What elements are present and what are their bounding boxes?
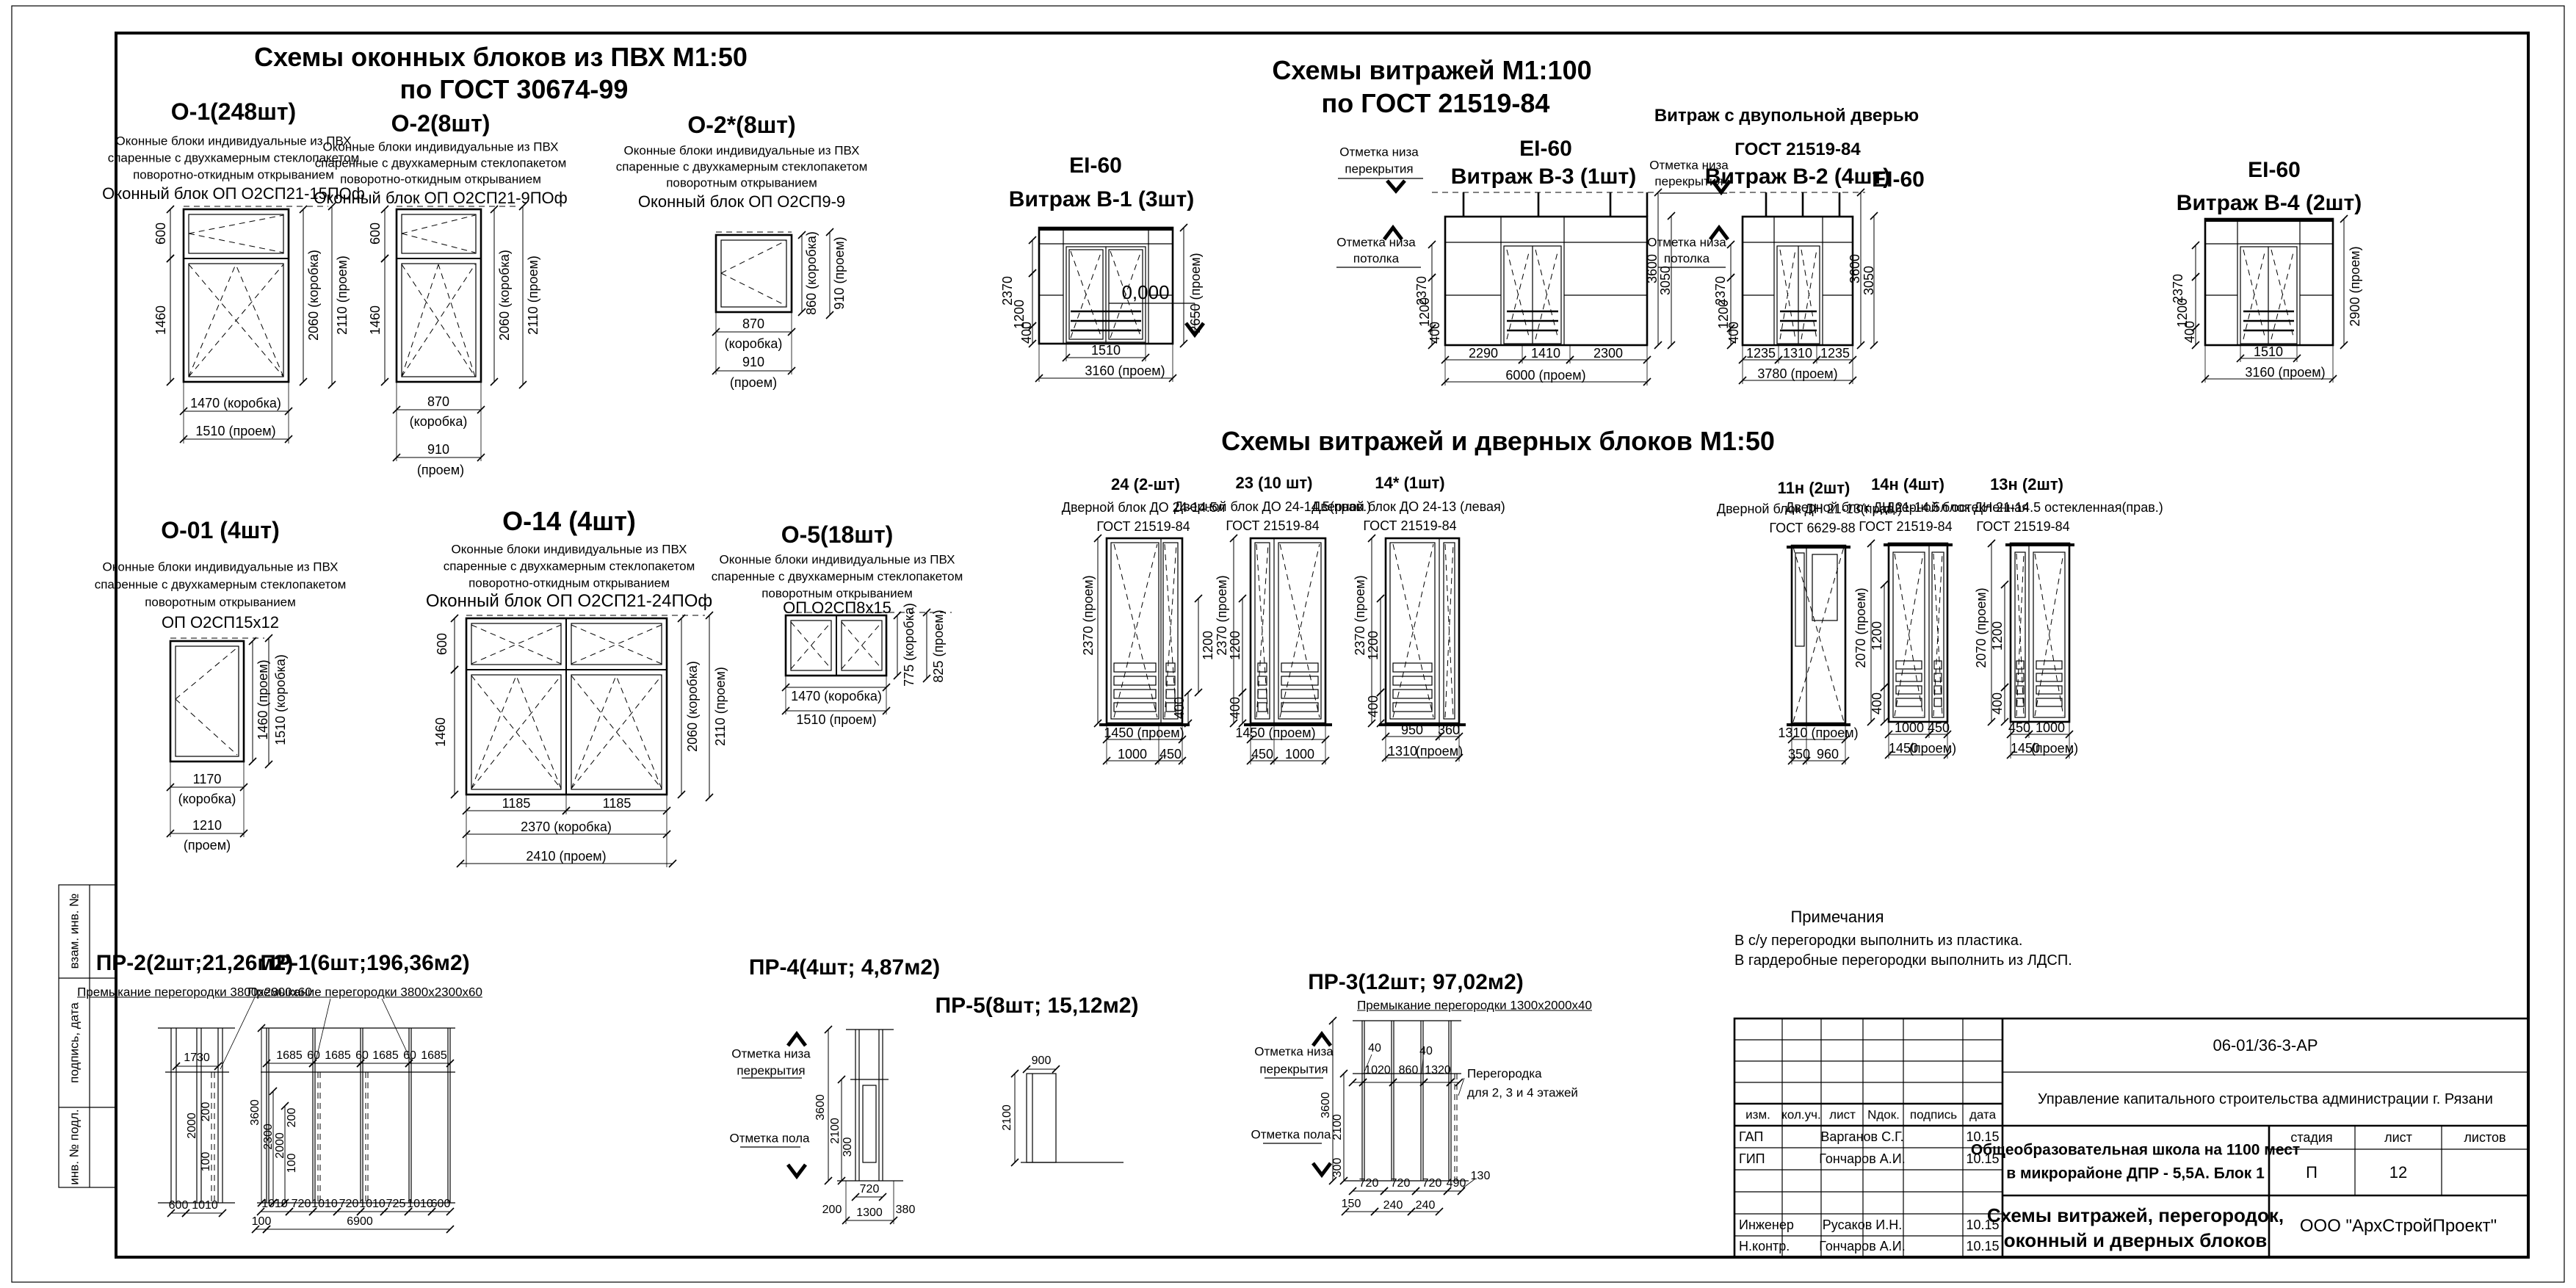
- dim-label: 2060 (коробка): [686, 661, 699, 752]
- dim-label: 1510 (проем): [796, 713, 876, 726]
- dim-label: 870: [742, 317, 764, 330]
- section-title-vitrage-2: по ГОСТ 21519-84: [1322, 90, 1550, 117]
- figure-title-pr5: ПР-5(8шт; 15,12м2): [936, 995, 1139, 1017]
- figure-desc: Дверной блок ДО 24-13 (левая): [1311, 500, 1505, 513]
- dim-label: 6000 (проем): [1505, 369, 1585, 382]
- dim-label: 950: [1401, 723, 1423, 737]
- dim-label: 860: [1399, 1065, 1419, 1077]
- dim-label: 1460: [154, 305, 167, 335]
- figure-subtitle: Витраж с двупольной дверью: [1654, 107, 1919, 125]
- figure-desc: поворотным открыванием: [666, 177, 817, 189]
- figure-desc: Оконные блоки индивидуальные из ПВХ: [720, 554, 955, 566]
- figure-desc: Дверной блок ДН 21-14.5 остекленная(прав…: [1886, 501, 2163, 514]
- mark-label: Отметка низа: [731, 1048, 811, 1060]
- section-title-vitrage-doors: Схемы витражей и дверных блоков М1:50: [1221, 428, 1775, 455]
- dim-label: 720: [339, 1198, 359, 1210]
- mark-label: Отметка низа: [1649, 159, 1729, 172]
- stamp-row-name: Гончаров А.И.: [1819, 1240, 1905, 1253]
- stamp-col-header: лист: [1829, 1109, 1856, 1121]
- figure-desc: спаренные с двухкамерным стеклопакетом: [95, 579, 347, 591]
- dim-label: 2370 (проем): [1082, 575, 1095, 655]
- dim-label: 400: [1727, 322, 1740, 344]
- mark-label: Отметка пола: [729, 1132, 809, 1145]
- dim-label: 490: [1447, 1178, 1466, 1190]
- figure-desc: поворотно-откидным открыванием: [468, 577, 670, 590]
- stamp-row-name: Русаков И.Н.: [1823, 1218, 1902, 1231]
- note-label: для 2, 3 и 4 этажей: [1467, 1087, 1578, 1099]
- mark-label: перекрытия: [1259, 1063, 1328, 1076]
- dim-label: 2060 (коробка): [498, 250, 511, 341]
- dim-label: 600: [169, 1200, 189, 1212]
- dim-label: 600: [435, 633, 449, 655]
- figure-title-d13n: 13н (2шт): [1990, 477, 2063, 493]
- dim-label: (коробка): [410, 415, 468, 428]
- dim-label: 3160 (проем): [2245, 366, 2325, 379]
- section-title-windows-1: Схемы оконных блоков из ПВХ М1:50: [254, 44, 748, 70]
- dim-label: 1460: [369, 305, 382, 335]
- dim-label: 6900: [347, 1216, 373, 1228]
- figure-desc: спаренные с двухкамерным стеклопакетом: [315, 157, 567, 170]
- dim-label: (проем): [417, 463, 464, 477]
- dim-label: 2370 (проем): [1353, 575, 1367, 655]
- dim-label: 380: [896, 1204, 916, 1216]
- dim-label: 1010: [261, 1198, 288, 1210]
- dim-label: 910 (проем): [833, 236, 846, 309]
- dim-label: 450: [1159, 748, 1182, 761]
- figure-fire-rating: EI-60: [2248, 159, 2301, 181]
- dim-label: 1410: [1531, 347, 1560, 360]
- dim-label: 1000: [1118, 748, 1147, 761]
- dim-label: 1235: [1746, 347, 1776, 360]
- dim-label: 1470 (коробка): [791, 690, 882, 703]
- stamp-object-1: Общеобразовательная школа на 1100 мест: [1971, 1143, 2300, 1158]
- dim-label: (коробка): [725, 337, 783, 350]
- dim-label: 2110 (проем): [527, 256, 540, 335]
- dim-label: 2110 (проем): [336, 256, 349, 335]
- figure-desc: ГОСТ 21519-84: [1976, 520, 2069, 533]
- dim-label: 360: [1438, 723, 1460, 737]
- dim-label: 1685: [421, 1050, 447, 1062]
- dim-label: 1010: [407, 1198, 433, 1210]
- dim-label: (проем): [730, 376, 777, 389]
- dim-label: 1310: [1783, 347, 1812, 360]
- figure-desc: Оконные блоки индивидуальные из ПВХ: [103, 561, 339, 574]
- dim-label: 2290: [1469, 347, 1498, 360]
- dim-label: 400: [1173, 697, 1186, 719]
- dim-label: 350: [1788, 748, 1810, 761]
- dim-label: 870: [427, 395, 449, 408]
- dim-label: 1010: [311, 1198, 338, 1210]
- dim-label: 400: [1020, 322, 1033, 344]
- dim-label: 40: [1419, 1046, 1433, 1057]
- dim-label: 3600: [1646, 254, 1659, 283]
- stamp-company: ООО "АрхСтройПроект": [2300, 1218, 2497, 1235]
- stamp-subject-1: Схемы витражей, перегородок,: [1987, 1206, 2284, 1225]
- dim-label: 1450 (проем): [1104, 726, 1184, 739]
- dim-label: 2650 (проем): [1189, 253, 1202, 333]
- dim-label: (проем): [184, 839, 231, 852]
- dim-label: 720: [1359, 1178, 1379, 1190]
- dim-label: 600: [154, 222, 167, 245]
- dim-label: 960: [1817, 748, 1839, 761]
- stamp-stage-header: стадия: [2290, 1131, 2332, 1144]
- dim-label: 1020: [1364, 1065, 1391, 1077]
- mark-label: Отметка низа: [1254, 1046, 1334, 1058]
- dim-label: 2900 (проем): [2348, 246, 2362, 326]
- dim-label: 1200: [1991, 621, 2004, 651]
- dim-label: 1730: [184, 1052, 210, 1064]
- figure-title-d23: 23 (10 шт): [1236, 475, 1313, 491]
- figure-desc: поворотным открыванием: [145, 596, 296, 609]
- dim-label: 150: [1342, 1198, 1361, 1210]
- figure-block-name: Оконный блок ОП О2СП21-24ПОф: [426, 593, 712, 610]
- dim-label: 2110 (проем): [714, 667, 727, 746]
- dim-label: 2070 (проем): [1854, 587, 1867, 667]
- dim-label: 2300: [1593, 347, 1623, 360]
- dim-label: 600: [369, 222, 382, 245]
- dim-label: 1210: [192, 819, 222, 832]
- dim-label: 400: [1367, 695, 1380, 717]
- note-line: В с/у перегородки выполнить из пластика.: [1734, 933, 2022, 948]
- dim-label: 1510 (коробка): [274, 654, 287, 745]
- dim-label: 860 (коробка): [805, 231, 818, 315]
- dim-label: 775 (коробка): [902, 603, 916, 687]
- figure-title-d14s: 14* (1шт): [1375, 475, 1444, 491]
- dim-label: 200: [200, 1102, 212, 1122]
- side-label-inv-podl: инв. № подл.: [68, 1109, 81, 1184]
- dim-label: 1685: [372, 1050, 399, 1062]
- dim-label: 400: [1870, 692, 1884, 714]
- dim-label: 1200: [1870, 621, 1884, 651]
- dim-label: 1200: [1367, 631, 1380, 660]
- dim-label: 200: [822, 1204, 842, 1216]
- figure-desc: Оконные блоки индивидуальные из ПВХ: [624, 145, 860, 157]
- stamp-sheet-value: 12: [2389, 1165, 2407, 1181]
- side-label-zam-inv: взам. инв. №: [68, 894, 81, 969]
- dim-label: 910: [742, 355, 764, 369]
- dim-label: 910: [427, 443, 449, 456]
- figure-desc: ГОСТ 21519-84: [1096, 520, 1190, 533]
- mark-label: Отметка низа: [1339, 146, 1419, 159]
- dim-label: 400: [2183, 321, 2196, 343]
- dim-label: 240: [1383, 1200, 1403, 1212]
- dim-label: 1685: [276, 1050, 303, 1062]
- figure-subtitle: ГОСТ 21519-84: [1734, 141, 1860, 159]
- figure-title-o2: О-2(8шт): [391, 112, 491, 135]
- stamp-subject-2: оконный и дверных блоков: [2004, 1231, 2268, 1250]
- mark-label: Отметка низа: [1647, 236, 1726, 249]
- dim-label: 60: [307, 1050, 320, 1062]
- dim-label: 3050: [1862, 266, 1875, 295]
- dim-label: 130: [1471, 1171, 1491, 1182]
- dim-label: 1460 (проем): [256, 659, 269, 739]
- pr5-drawing: [1011, 1066, 1124, 1166]
- dim-label: (проем): [2031, 742, 2078, 755]
- dim-label: 2070 (проем): [1975, 587, 1988, 667]
- dim-label: 1510 (проем): [195, 424, 275, 438]
- dim-label: (коробка): [178, 792, 236, 806]
- figure-fire-rating: EI-60: [1519, 138, 1572, 160]
- dim-label: 720: [292, 1198, 311, 1210]
- dim-label: 825 (проем): [932, 609, 945, 682]
- dim-label: 1010: [359, 1198, 386, 1210]
- dim-label: 2300: [263, 1124, 275, 1150]
- dim-label: 2100: [830, 1118, 842, 1144]
- figure-desc: Оконные блоки индивидуальные из ПВХ: [116, 135, 352, 148]
- stamp-col-header: дата: [1969, 1109, 1996, 1121]
- figure-title-o14: О-14 (4шт): [502, 508, 636, 535]
- dim-label: 900: [1032, 1055, 1052, 1067]
- dim-label: 450: [1928, 721, 1950, 734]
- stamp-col-header: изм.: [1745, 1109, 1770, 1121]
- figure-title-pr4: ПР-4(4шт; 4,87м2): [749, 957, 940, 979]
- dim-label: 3600: [250, 1099, 261, 1126]
- dim-label: 2370 (проем): [1215, 575, 1229, 655]
- stamp-doc-number: 06-01/36-3-АР: [2213, 1038, 2318, 1054]
- mark-label: перекрытия: [1345, 163, 1413, 176]
- dim-label: 1300: [856, 1207, 883, 1219]
- dim-label: 2060 (коробка): [307, 250, 320, 341]
- figure-fire-rating: EI-60: [1069, 155, 1122, 177]
- figure-title-d24: 24 (2-шт): [1111, 477, 1180, 493]
- dim-label: 1170: [193, 773, 222, 786]
- figure-title-d14n: 14н (4шт): [1871, 477, 1944, 493]
- dim-label: 1000: [2036, 721, 2065, 734]
- dim-label: 100: [252, 1216, 272, 1228]
- note-label: Перегородка: [1467, 1068, 1542, 1080]
- stamp-row-role: Инженер: [1739, 1218, 1794, 1231]
- dim-label: 1320: [1425, 1065, 1451, 1077]
- stamp-object-2: в микрорайоне ДПР - 5,5А. Блок 1: [2006, 1166, 2265, 1182]
- note-line: В гардеробные перегородки выполнить из Л…: [1734, 953, 2072, 968]
- figure-desc: Оконные блоки индивидуальные из ПВХ: [323, 141, 559, 153]
- dim-label: 720: [860, 1184, 880, 1195]
- figure-title-b1: Витраж В-1 (3шт): [1009, 189, 1194, 211]
- figure-desc: ГОСТ 21519-84: [1226, 519, 1319, 532]
- stamp-row-role: ГИП: [1739, 1152, 1765, 1165]
- mark-label: Отметка низа: [1336, 236, 1416, 249]
- stamp-row-name: Варганов С.Г.: [1820, 1130, 1903, 1143]
- dim-label: 725: [386, 1198, 406, 1210]
- figure-desc: Премыкание перегородки 3800х2300х60: [247, 986, 482, 999]
- dim-label: 200: [286, 1108, 298, 1128]
- dim-label: 1000: [1285, 748, 1314, 761]
- dim-label: 60: [403, 1050, 416, 1062]
- stamp-stage-value: П: [2306, 1165, 2318, 1181]
- figure-title-pr3: ПР-3(12шт; 97,02м2): [1308, 972, 1524, 994]
- figure-desc: поворотно-откидным открыванием: [133, 169, 334, 181]
- dim-label: 2100: [1332, 1114, 1344, 1140]
- section-title-windows-2: по ГОСТ 30674-99: [400, 76, 629, 103]
- figure-block-name: ОП О2СП15х12: [162, 615, 279, 631]
- dim-label: 720: [1422, 1178, 1442, 1190]
- figure-desc: поворотным открыванием: [761, 587, 913, 600]
- figure-title-o1: О-1(248шт): [171, 100, 296, 123]
- figure-title-o5: О-5(18шт): [781, 523, 894, 546]
- stamp-row-date: 10.15: [1966, 1240, 1999, 1253]
- section-title-vitrage-1: Схемы витражей М1:100: [1272, 57, 1591, 84]
- dim-label: 1000: [1895, 721, 1924, 734]
- mark-label: потолка: [1353, 253, 1399, 265]
- notes-title: Примечания: [1790, 909, 1884, 925]
- figure-title-b2: Витраж В-2 (4шт): [1705, 166, 1890, 188]
- dim-label: 1235: [1820, 347, 1850, 360]
- figure-desc: Премыкание перегородки 1300х2000х40: [1357, 999, 1592, 1012]
- figure-desc: ГОСТ 21519-84: [1859, 520, 1952, 533]
- level-mark: 0,000: [1121, 283, 1169, 302]
- stamp-col-header: кол.уч.: [1781, 1109, 1820, 1121]
- figure-desc: спаренные с двухкамерным стеклопакетом: [616, 161, 868, 173]
- stamp-col-header: Nдок.: [1867, 1109, 1900, 1121]
- mark-label: перекрытия: [737, 1065, 805, 1077]
- figure-desc: спаренные с двухкамерным стеклопакетом: [712, 571, 963, 583]
- stamp-row-role: ГАП: [1739, 1130, 1763, 1143]
- dim-label: (проем): [1909, 742, 1956, 755]
- dim-label: 300: [842, 1137, 854, 1157]
- figure-title-o01: О-01 (4шт): [161, 518, 279, 542]
- figure-desc: ГОСТ 21519-84: [1363, 519, 1456, 532]
- figure-block-name: Оконный блок ОП О2СП21-9ПОф: [314, 190, 568, 206]
- dim-label: 1685: [325, 1050, 351, 1062]
- dim-label: 400: [1428, 322, 1441, 344]
- dim-label: 3600: [1848, 254, 1862, 283]
- dim-label: 2100: [1002, 1104, 1013, 1131]
- stamp-organization: Управление капитального строительства ад…: [2038, 1092, 2493, 1107]
- dim-label: 1010: [192, 1200, 218, 1212]
- stamp-col-header: подпись: [1910, 1109, 1957, 1121]
- figure-desc: Оконные блоки индивидуальные из ПВХ: [452, 543, 687, 556]
- dim-label: (проем): [1416, 745, 1463, 758]
- stamp-row-name: Гончаров А.И.: [1819, 1152, 1905, 1165]
- dim-label: 3600: [815, 1094, 827, 1121]
- figure-desc: ГОСТ 6629-88: [1769, 521, 1855, 535]
- dim-label: 1510: [1091, 344, 1121, 357]
- dim-label: 40: [1368, 1043, 1381, 1054]
- dim-label: 60: [355, 1050, 369, 1062]
- dim-label: 1310: [1388, 745, 1417, 758]
- figure-block-name: Оконный блок ОП О2СП9-9: [638, 194, 845, 210]
- dim-label: 2370 (коробка): [521, 820, 612, 833]
- dim-label: 400: [1229, 697, 1242, 719]
- dim-label: 450: [2008, 721, 2030, 734]
- dim-label: 3780 (проем): [1757, 367, 1837, 380]
- dim-label: 1450 (проем): [1235, 726, 1315, 739]
- dim-label: 100: [200, 1152, 212, 1172]
- dim-label: 400: [1991, 692, 2004, 714]
- figure-title-o2star: О-2*(8шт): [687, 113, 795, 137]
- dim-label: 240: [1416, 1200, 1436, 1212]
- dim-label: 3160 (проем): [1085, 364, 1165, 377]
- dim-label: 100: [286, 1154, 298, 1173]
- dim-label: 1510: [2254, 345, 2283, 358]
- side-label-podpis-data: подпись, дата: [68, 1002, 81, 1083]
- dim-label: 2410 (проем): [526, 850, 606, 863]
- dim-label: 600: [431, 1198, 451, 1210]
- figure-desc: поворотно-откидным открыванием: [340, 173, 541, 186]
- dim-label: 1185: [502, 797, 531, 810]
- dim-label: 1460: [434, 717, 447, 747]
- dim-label: 3050: [1659, 266, 1672, 295]
- mark-label: Отметка пола: [1251, 1129, 1331, 1141]
- figure-title-b4: Витраж В-4 (2шт): [2177, 192, 2362, 214]
- dim-label: 1310 (проем): [1778, 726, 1858, 739]
- drawing-sheet: Схемы оконных блоков из ПВХ М1:50 по ГОС…: [0, 0, 2576, 1288]
- stamp-row-role: Н.контр.: [1739, 1240, 1790, 1253]
- dim-label: 2000: [187, 1112, 198, 1139]
- figure-fire-rating: EI-60: [1872, 169, 1925, 191]
- dim-label: 1200: [1201, 631, 1215, 660]
- figure-title-b3: Витраж В-3 (1шт): [1451, 166, 1636, 188]
- dim-label: 2000: [275, 1132, 286, 1159]
- dim-label: 300: [1332, 1158, 1344, 1178]
- mark-label: потолка: [1664, 253, 1710, 265]
- figure-block-name: ОП О2СП8х15: [783, 600, 891, 616]
- dim-label: 1200: [1229, 631, 1242, 660]
- stamp-sheets-header: листов: [2464, 1131, 2506, 1144]
- figure-title-pr1: ПР-1(6шт;196,36м2): [260, 952, 469, 974]
- mark-label: перекрытия: [1654, 176, 1723, 188]
- dim-label: 1185: [603, 797, 632, 810]
- dim-label: 1470 (коробка): [190, 397, 281, 410]
- figure-desc: спаренные с двухкамерным стеклопакетом: [444, 560, 695, 573]
- stamp-sheet-header: лист: [2384, 1131, 2412, 1144]
- dim-label: 3600: [1320, 1092, 1332, 1118]
- figure-title-d11n: 11н (2шт): [1778, 480, 1850, 496]
- dim-label: 720: [1391, 1178, 1411, 1190]
- dim-label: 450: [1251, 748, 1273, 761]
